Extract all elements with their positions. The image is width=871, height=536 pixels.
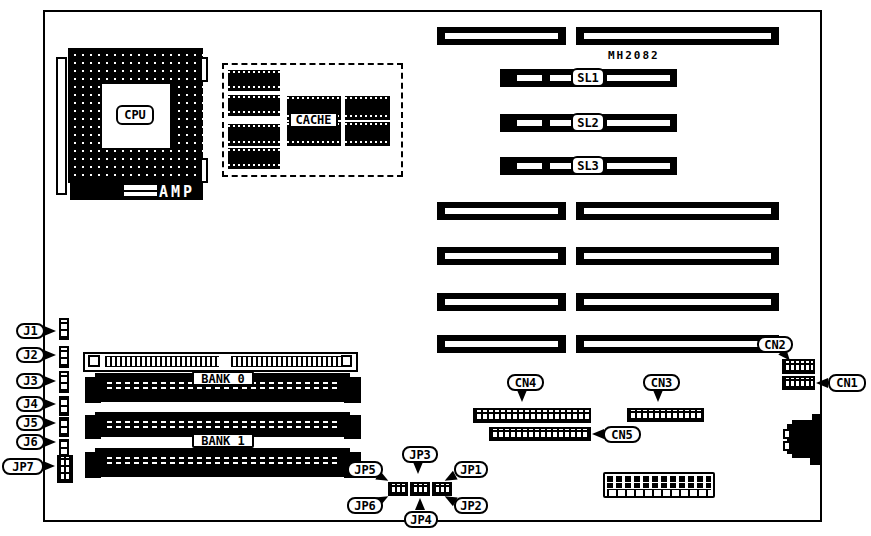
- jp7-pointer: [43, 461, 55, 471]
- chip-marking: MH2082: [608, 49, 660, 62]
- jumper-block: [410, 482, 430, 496]
- power-socket-row: [607, 489, 711, 497]
- expansion-slot: [437, 247, 566, 265]
- cache-label: CACHE: [289, 112, 338, 128]
- cache-chip: [228, 70, 280, 91]
- j4-pointer: [44, 399, 56, 409]
- cpu-label: CPU: [116, 105, 154, 125]
- bank1-label: BANK 1: [192, 433, 254, 448]
- j3-label: J3: [16, 373, 45, 389]
- slot-contact: [550, 75, 572, 81]
- cache-chip: [345, 122, 390, 146]
- simm-socket-outline: [83, 352, 358, 372]
- j6-pointer: [44, 437, 56, 447]
- expansion-slot: [437, 335, 566, 353]
- expansion-slot: [437, 293, 566, 311]
- slot-contact: [550, 120, 572, 126]
- jumper-block: [388, 482, 408, 496]
- expansion-slot: [576, 293, 779, 311]
- simm-latch: [341, 355, 352, 367]
- jp4-label: JP4: [404, 511, 438, 528]
- expansion-slot: [437, 202, 566, 220]
- cn5-label: CN5: [603, 426, 641, 443]
- jp4-pointer: [415, 498, 425, 510]
- slot-contact: [517, 75, 542, 81]
- j1-header: [59, 318, 69, 340]
- j5-header: [59, 417, 69, 437]
- j4-label: J4: [16, 396, 45, 412]
- slot-contact: [445, 341, 558, 347]
- jp2-label: JP2: [454, 497, 488, 514]
- socket-tab-bottom: [200, 158, 208, 183]
- keyboard-pin: [783, 441, 791, 451]
- cn3-connector: [627, 408, 704, 422]
- jp3-label: JP3: [402, 446, 438, 463]
- bank0-label: BANK 0: [192, 371, 254, 386]
- simm-slot: [95, 448, 350, 477]
- j3-pointer: [44, 376, 56, 386]
- cache-chip: [228, 95, 280, 116]
- cache-chip: [345, 96, 390, 120]
- sl-slot-2: SL2: [500, 114, 677, 132]
- jp7-block: [57, 455, 73, 483]
- power-pin-row: [607, 476, 711, 482]
- jp5-label: JP5: [347, 461, 383, 478]
- jp1-label: JP1: [454, 461, 488, 478]
- keyboard-connector: [792, 420, 822, 458]
- simm-contact-strip: [105, 356, 219, 367]
- jp7-label: JP7: [2, 458, 44, 475]
- jp6-label: JP6: [347, 497, 383, 514]
- simm-latch: [88, 355, 100, 367]
- keyboard-connector-step-top: [812, 414, 822, 421]
- j4-header: [59, 396, 69, 416]
- slot-contact: [517, 163, 542, 169]
- cn1-label: CN1: [828, 374, 866, 392]
- cn3-label: CN3: [643, 374, 680, 391]
- cn4-pointer: [517, 390, 527, 402]
- slot-contact: [584, 341, 771, 347]
- slot-contact: [445, 33, 558, 39]
- cn5-connector: [489, 427, 591, 441]
- cn3-pointer: [653, 390, 663, 402]
- cn1-pointer: [816, 378, 828, 388]
- slot-contact: [445, 208, 558, 214]
- slot-contact: [607, 163, 670, 169]
- j6-label: J6: [16, 434, 45, 450]
- j1-pointer: [44, 326, 56, 336]
- slot-contact: [445, 299, 558, 305]
- j2-pointer: [44, 350, 56, 360]
- sl1-label: SL1: [571, 68, 605, 87]
- slot-contact: [445, 253, 558, 259]
- j1-label: J1: [16, 323, 45, 339]
- cache-chip: [228, 148, 280, 169]
- keyboard-pin: [783, 429, 791, 439]
- expansion-slot: [576, 335, 779, 353]
- expansion-slot: [576, 247, 779, 265]
- power-key-row: [607, 483, 711, 488]
- sl3-label: SL3: [571, 156, 605, 175]
- expansion-slot: [576, 27, 779, 45]
- slot-contact: [607, 120, 670, 126]
- keyboard-connector-step-bottom: [810, 458, 822, 465]
- slot-contact: [584, 299, 771, 305]
- expansion-slot: [576, 202, 779, 220]
- jp3-pointer: [413, 462, 423, 474]
- slot-contact: [550, 163, 572, 169]
- cn1-connector: [782, 376, 815, 390]
- motherboard-diagram: CPU AMP CACHE MH2082 SL1 SL2 SL3: [0, 0, 871, 536]
- cache-chip: [228, 124, 280, 146]
- socket-base-notch2: [124, 192, 157, 196]
- cn4-label: CN4: [507, 374, 544, 391]
- j5-pointer: [44, 418, 56, 428]
- socket-tab-top: [200, 57, 208, 82]
- slot-contact: [584, 33, 771, 39]
- slot-contact: [607, 75, 670, 81]
- j2-header: [59, 346, 69, 368]
- j3-header: [59, 371, 69, 393]
- socket-base-notch: [124, 185, 157, 190]
- j5-label: J5: [16, 415, 45, 431]
- cn4-connector: [473, 408, 591, 423]
- slot-contact: [517, 120, 542, 126]
- slot-contact: [584, 208, 771, 214]
- slot-contact: [584, 253, 771, 259]
- cpu-side-bracket: [56, 57, 67, 195]
- amp-label: AMP: [159, 183, 195, 201]
- simm-contact-strip: [231, 356, 341, 367]
- expansion-slot: [437, 27, 566, 45]
- j2-label: J2: [16, 347, 45, 363]
- sl2-label: SL2: [571, 113, 605, 132]
- sl-slot-1: SL1: [500, 69, 677, 87]
- sl-slot-3: SL3: [500, 157, 677, 175]
- cn2-label: CN2: [757, 336, 793, 353]
- power-connector: [603, 472, 715, 498]
